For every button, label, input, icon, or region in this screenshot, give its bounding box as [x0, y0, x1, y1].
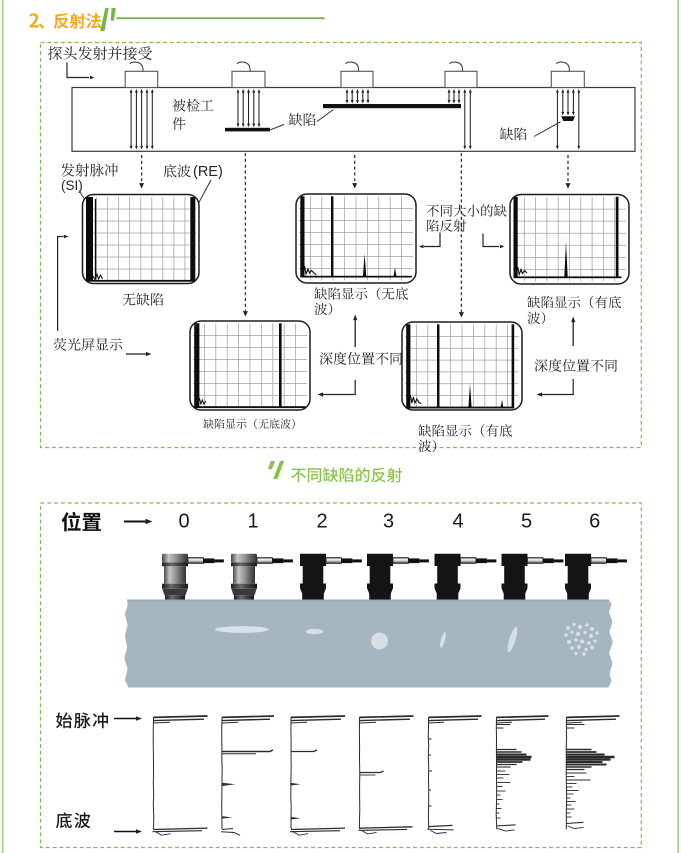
svg-text:4: 4: [452, 511, 463, 533]
svg-text:1: 1: [247, 511, 258, 533]
svg-text:(RE): (RE): [193, 164, 223, 180]
svg-text:0: 0: [178, 511, 189, 533]
svg-text:6: 6: [589, 511, 600, 533]
svg-text:2: 2: [316, 511, 327, 533]
svg-text:5: 5: [521, 511, 532, 533]
svg-text:3: 3: [383, 511, 394, 533]
